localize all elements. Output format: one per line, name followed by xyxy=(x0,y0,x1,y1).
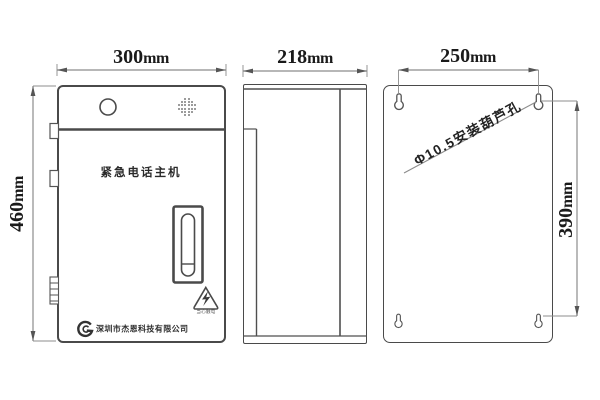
vent-latch xyxy=(50,277,59,304)
company-name: 深圳市杰恩科技有限公司 xyxy=(96,324,188,335)
back-height-dimension: 390mm xyxy=(556,182,576,238)
speaker-grille-icon xyxy=(178,98,196,116)
side-width-dimension: 218mm xyxy=(277,47,333,67)
round-hole xyxy=(100,99,116,115)
door-lock-handle xyxy=(174,207,203,283)
back-width-dimension: 250mm xyxy=(440,46,496,66)
front-width-dimension: 300mm xyxy=(113,47,169,67)
front-height-dimension: 460mm xyxy=(7,176,27,232)
company-logo-icon xyxy=(78,322,92,336)
hinge xyxy=(50,124,59,187)
warning-caption: 当心触电 xyxy=(196,309,215,315)
technical-drawing: 300mm 460mm 218mm 250mm 390mm 紧急电话主机 Φ10… xyxy=(0,0,600,400)
side-view-lines xyxy=(243,89,367,336)
device-title: 紧急电话主机 xyxy=(101,164,182,180)
electric-warning-icon xyxy=(194,288,218,310)
